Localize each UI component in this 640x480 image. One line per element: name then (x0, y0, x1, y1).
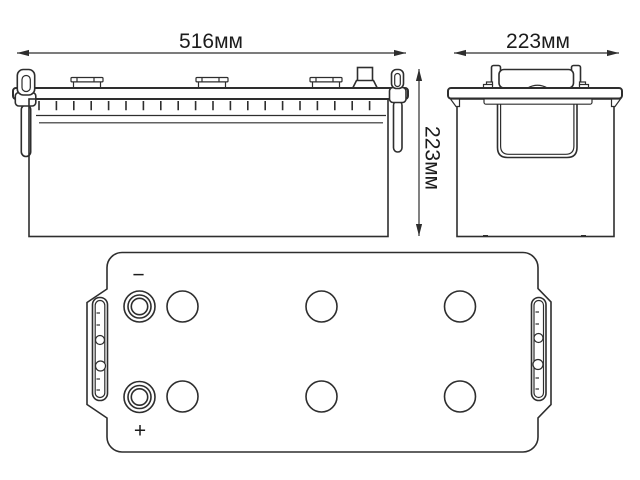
front-right-handle (394, 101, 403, 152)
negative-label: − (132, 264, 144, 287)
vent-plug (167, 381, 198, 412)
arrow-right-icon (394, 50, 406, 56)
side-width-label: 223мм (506, 30, 570, 53)
vent-cap-top (196, 78, 228, 82)
handle-hole (534, 334, 543, 343)
battery-technical-drawing: 516мм (0, 0, 640, 480)
handle-loop-slot (22, 76, 30, 92)
side-width-dimension: 223мм (454, 30, 619, 56)
front-width-label: 516мм (179, 30, 243, 53)
front-right-handle-top (390, 70, 407, 103)
top-left-handle (93, 298, 108, 401)
side-handle-strap (498, 103, 578, 158)
front-terminal-post (353, 68, 378, 89)
drawing-canvas: 516мм (0, 0, 640, 480)
side-lid-flange (448, 88, 622, 99)
handle-bracket (390, 88, 407, 103)
handle-hole (96, 361, 106, 371)
top-outline (87, 253, 551, 453)
vent-plug (306, 291, 337, 322)
vent-plug (306, 381, 337, 412)
vent-cap (196, 78, 228, 89)
front-vent-caps (71, 78, 342, 89)
arrow-down-icon (416, 224, 422, 236)
front-view: 516мм (13, 30, 444, 237)
strap-outer (498, 103, 578, 158)
vent-cap (310, 78, 342, 89)
height-dimension: 223мм (416, 69, 444, 236)
front-lid-flange (13, 88, 408, 99)
handle-hole (96, 336, 105, 345)
vent-plug (167, 291, 198, 322)
arrow-up-icon (416, 69, 422, 81)
top-right-handle (532, 298, 547, 401)
handle-rod (394, 101, 403, 152)
height-label: 223мм (421, 126, 444, 190)
terminal-post-top (358, 68, 373, 82)
front-left-handle-top (15, 70, 36, 107)
handle-hole (533, 360, 543, 370)
front-body (29, 99, 388, 237)
top-view: − + (87, 253, 551, 453)
arrow-right-icon (607, 50, 619, 56)
vent-plug (445, 381, 476, 412)
arrow-left-icon (454, 50, 466, 56)
vent-cap-top (310, 78, 342, 82)
front-width-dimension: 516мм (17, 30, 406, 56)
vent-cap-top (71, 78, 103, 82)
vent-plug (445, 291, 476, 322)
arrow-left-icon (17, 50, 29, 56)
positive-label: + (134, 420, 146, 443)
side-view: 223мм (448, 30, 622, 237)
flange-ear-right (612, 99, 621, 107)
flange-ear-left (451, 99, 460, 107)
vent-cap (71, 78, 103, 89)
handle-loop-slot (395, 74, 401, 87)
